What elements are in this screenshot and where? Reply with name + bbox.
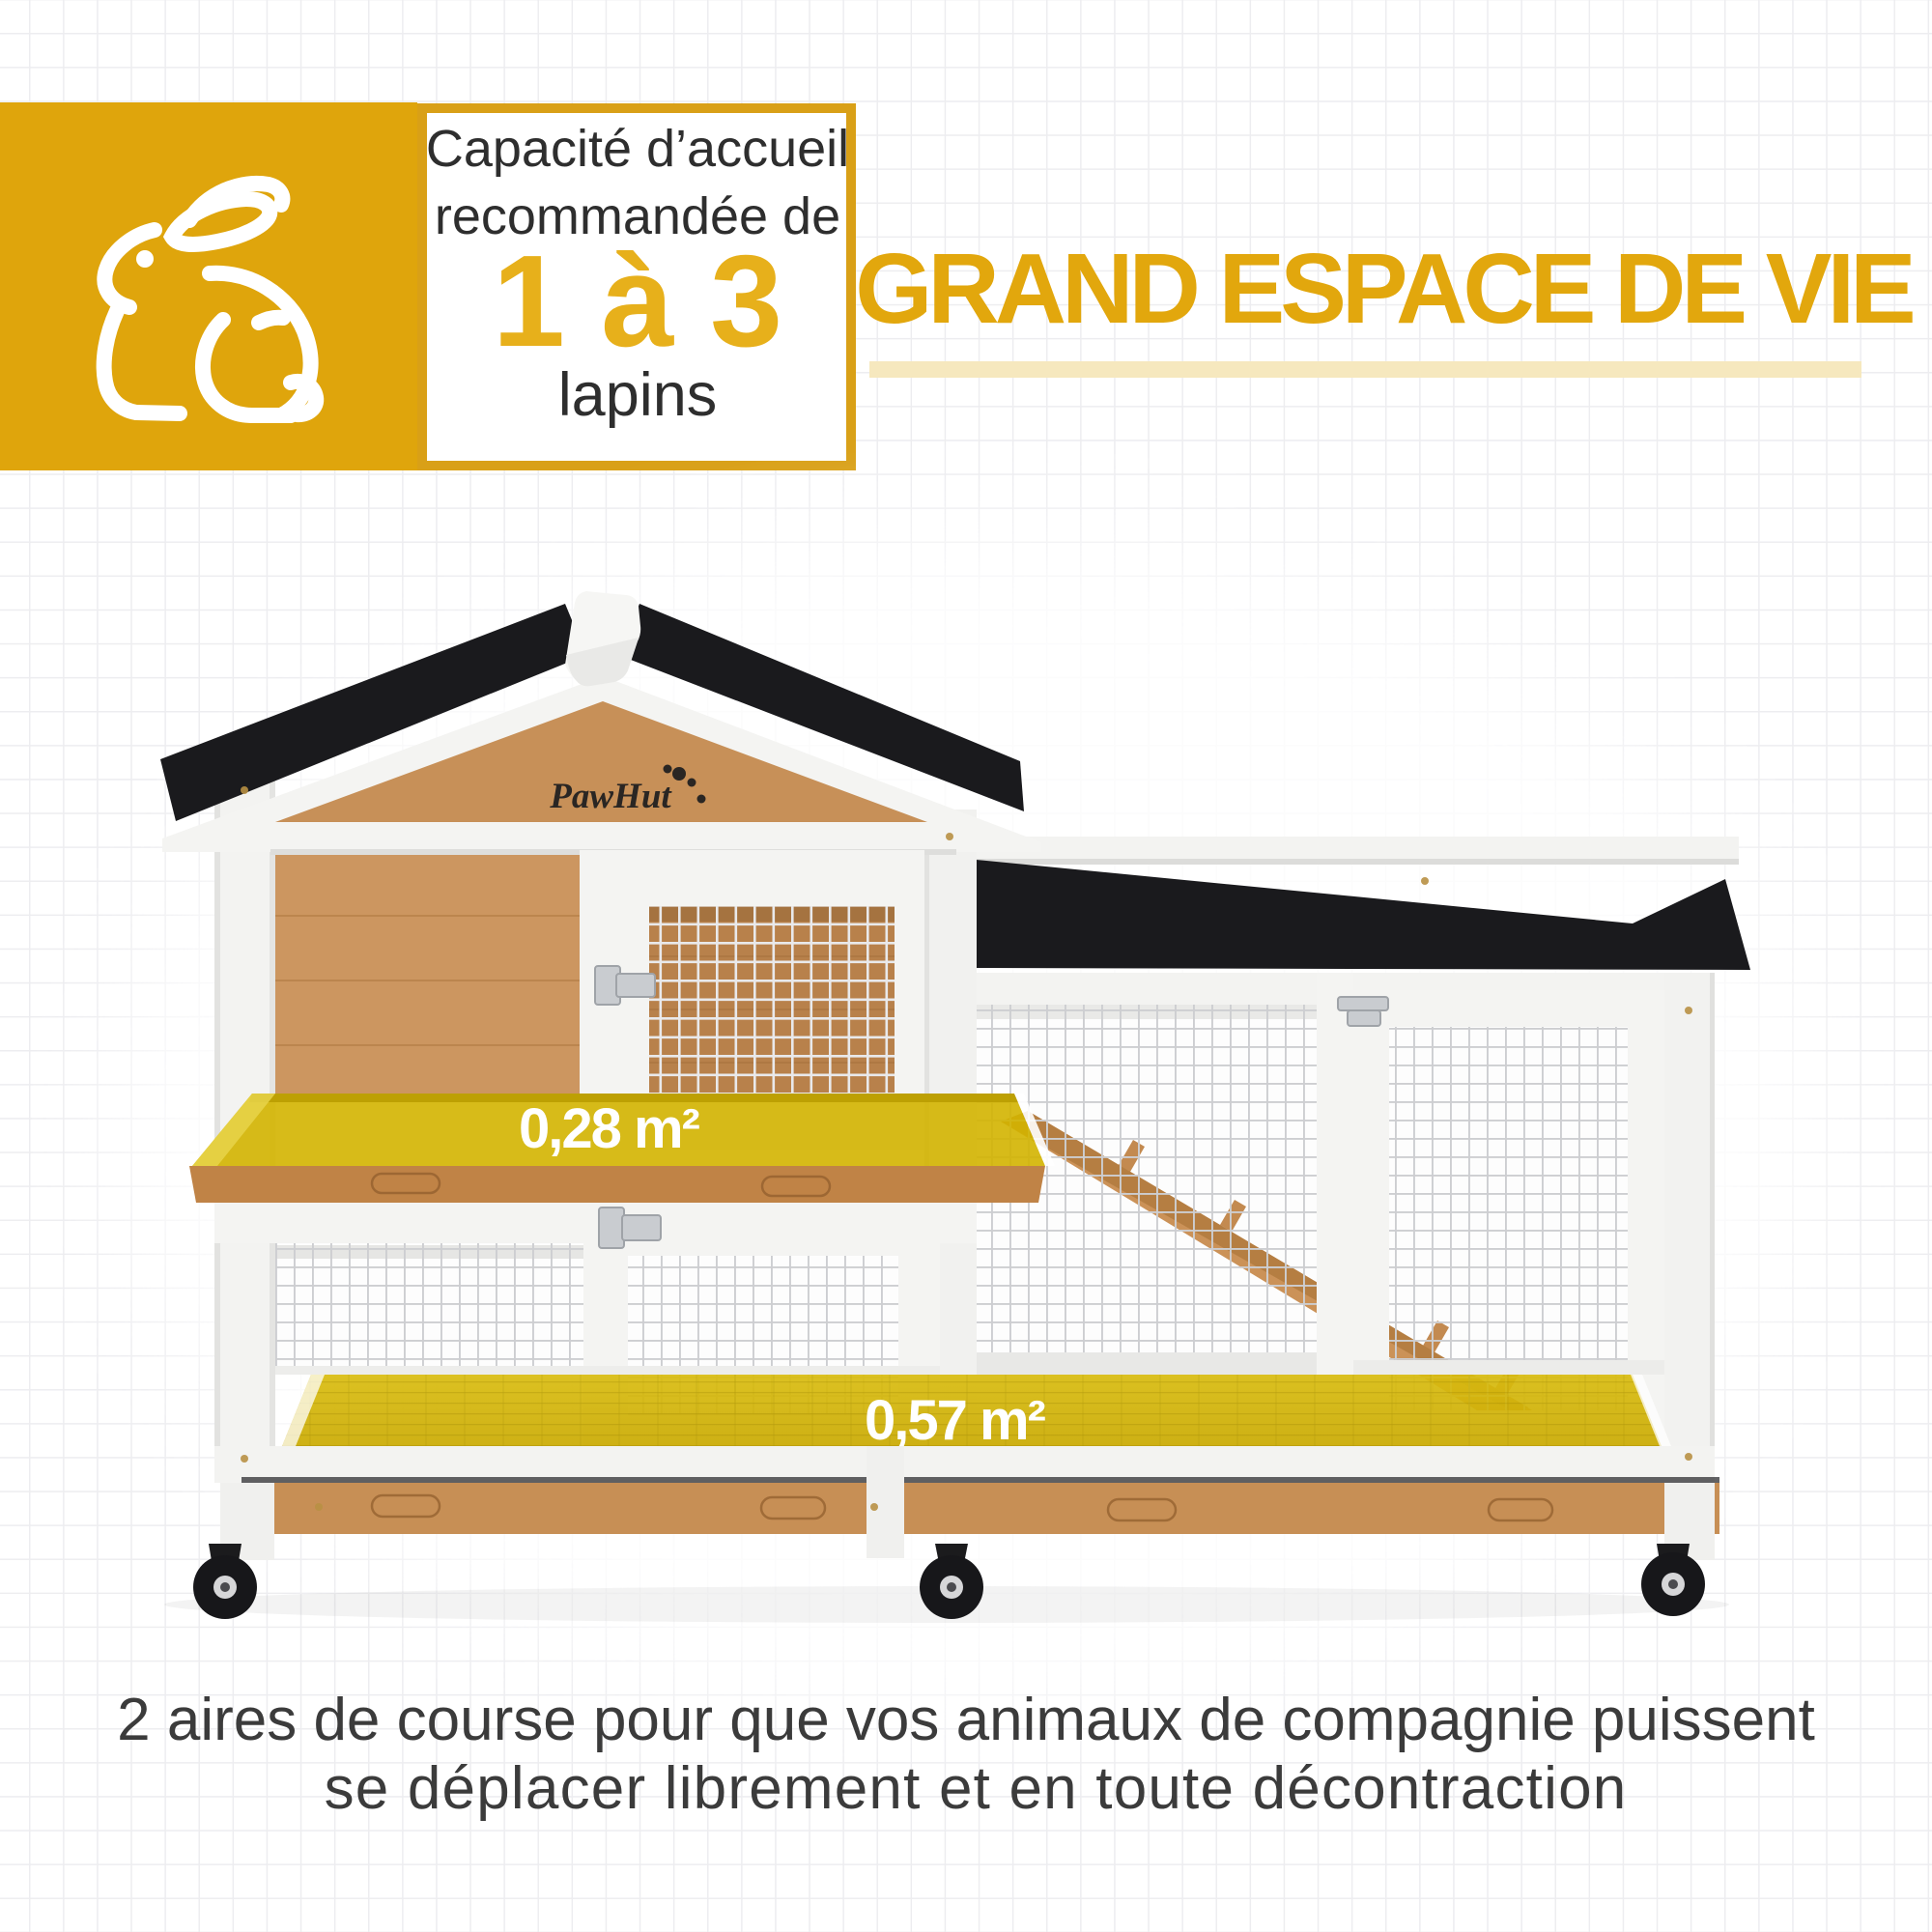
svg-text:Capacité d’accueil: Capacité d’accueil xyxy=(426,120,849,178)
svg-text:lapins: lapins xyxy=(558,361,718,429)
svg-text:2 aires de course pour que vos: 2 aires de course pour que vos animaux d… xyxy=(117,1687,1815,1753)
svg-text:0,57 m²: 0,57 m² xyxy=(865,1389,1046,1452)
svg-text:1 à 3: 1 à 3 xyxy=(493,228,782,374)
svg-text:se déplacer librement et en to: se déplacer librement et en toute décont… xyxy=(325,1755,1628,1822)
svg-text:0,28 m²: 0,28 m² xyxy=(519,1097,700,1160)
svg-text:GRAND ESPACE DE VIE: GRAND ESPACE DE VIE xyxy=(855,233,1913,344)
svg-text:PawHut: PawHut xyxy=(549,777,672,816)
